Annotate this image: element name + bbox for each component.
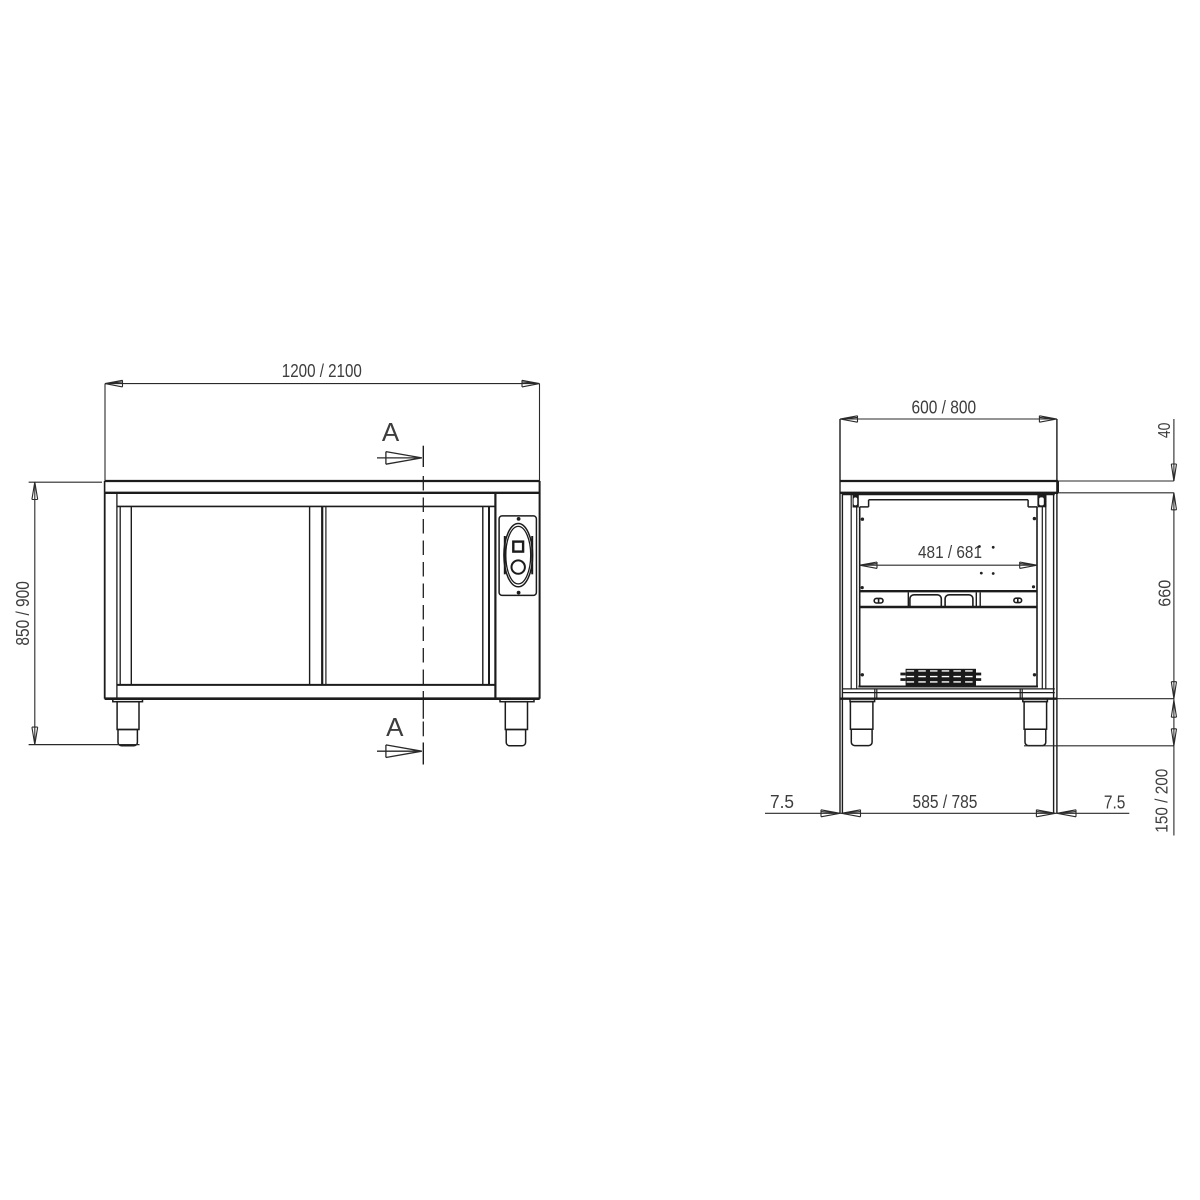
svg-text:150 / 200: 150 / 200 bbox=[1152, 768, 1172, 832]
svg-text:A: A bbox=[382, 417, 400, 447]
svg-text:481 / 681: 481 / 681 bbox=[918, 542, 982, 562]
svg-text:585 / 785: 585 / 785 bbox=[913, 792, 978, 812]
svg-text:7.5: 7.5 bbox=[770, 792, 794, 812]
svg-text:A: A bbox=[386, 712, 404, 742]
svg-text:1200 / 2100: 1200 / 2100 bbox=[282, 361, 362, 381]
svg-text:660: 660 bbox=[1155, 580, 1175, 607]
svg-text:7.5: 7.5 bbox=[1104, 792, 1126, 812]
svg-text:40: 40 bbox=[1154, 422, 1174, 438]
svg-text:850 / 900: 850 / 900 bbox=[13, 581, 33, 645]
svg-text:600 / 800: 600 / 800 bbox=[912, 397, 977, 417]
